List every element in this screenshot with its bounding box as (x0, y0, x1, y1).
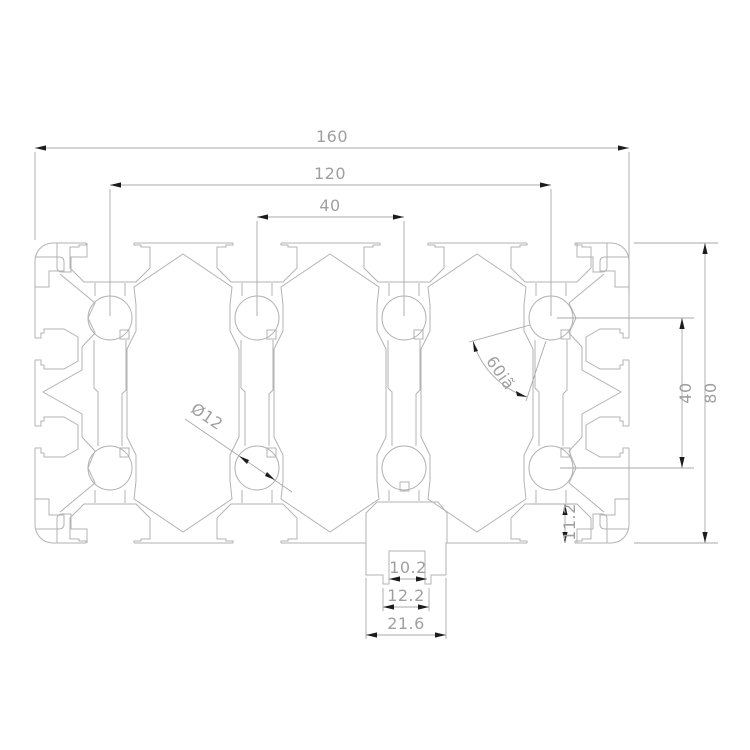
left-edge-cavity (43, 274, 95, 512)
dim-hole-diameter: Ø12 (187, 399, 226, 434)
right-edge-cavity (569, 274, 621, 512)
hole-7 (382, 446, 426, 490)
hole-column-webs (94, 283, 567, 503)
dim-hole-span: 120 (314, 164, 346, 183)
cavity-chain-2 (274, 254, 386, 532)
dim-channel-inner-width: 10.2 (389, 558, 427, 577)
dim-slot-angle: 60iã (482, 352, 519, 393)
bottom-channel-cavity (366, 502, 447, 543)
dim-hole-pitch: 40 (319, 196, 340, 215)
side-t-slots (35, 329, 629, 457)
corner-slots (35, 243, 629, 543)
dim-channel-wall-width: 12.2 (387, 586, 425, 605)
bottom-t-slots (70, 504, 591, 543)
dim-overall-height: 80 (701, 382, 720, 403)
cavity-chain-1 (127, 254, 239, 532)
dimension-arrows (35, 145, 708, 637)
profile-drawing: 160 120 40 80 40 11.2 10.2 12.2 21.6 Ø12… (0, 0, 750, 750)
dimensions: 160 120 40 80 40 11.2 10.2 12.2 21.6 Ø12… (35, 127, 720, 639)
top-t-slots (70, 243, 591, 282)
dim-hole-row-span: 40 (676, 382, 695, 403)
profile-outline (35, 243, 629, 584)
dimension-lines (35, 148, 718, 639)
outer-contour (35, 243, 629, 584)
dim-slot-depth: 11.2 (560, 503, 579, 541)
hole-5 (88, 446, 132, 490)
dim-overall-width: 160 (316, 127, 348, 146)
drawing-canvas: 160 120 40 80 40 11.2 10.2 12.2 21.6 Ø12… (0, 0, 750, 750)
hole-notches (120, 330, 570, 491)
dim-channel-outer-width: 21.6 (387, 614, 425, 633)
